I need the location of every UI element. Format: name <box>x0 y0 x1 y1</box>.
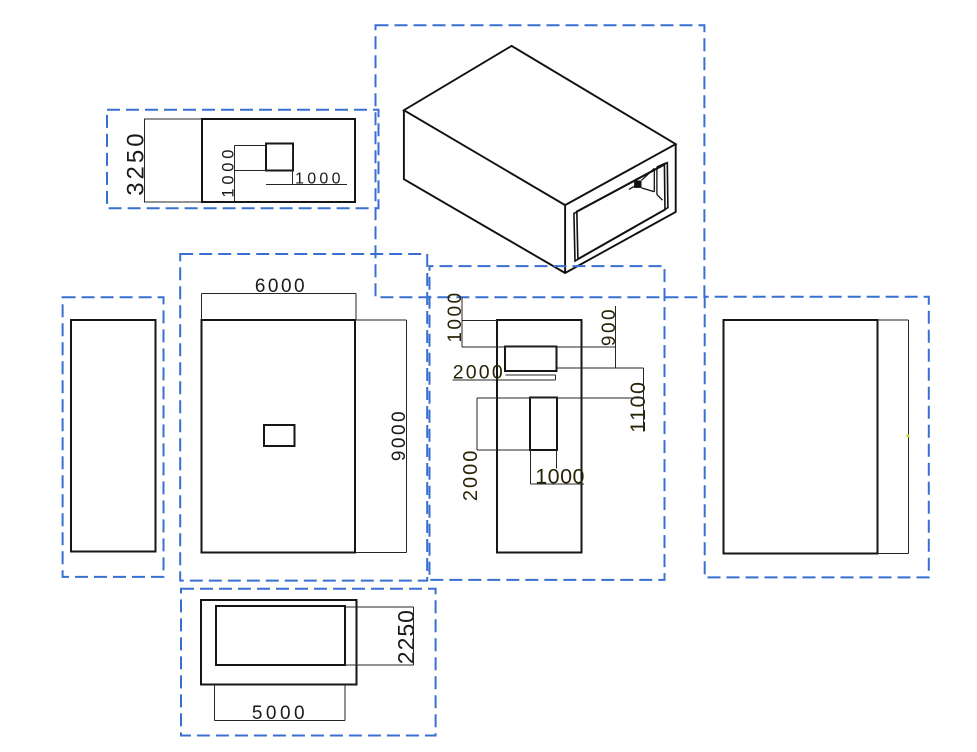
svg-text:1000: 1000 <box>445 290 466 342</box>
svg-text:9000: 9000 <box>389 409 410 461</box>
svg-text:2000: 2000 <box>460 449 482 502</box>
svg-text:2250: 2250 <box>393 609 419 664</box>
svg-text:1100: 1100 <box>626 381 650 433</box>
svg-text:3250: 3250 <box>123 130 150 195</box>
svg-text:900: 900 <box>599 307 620 346</box>
svg-text:1000: 1000 <box>535 465 585 489</box>
